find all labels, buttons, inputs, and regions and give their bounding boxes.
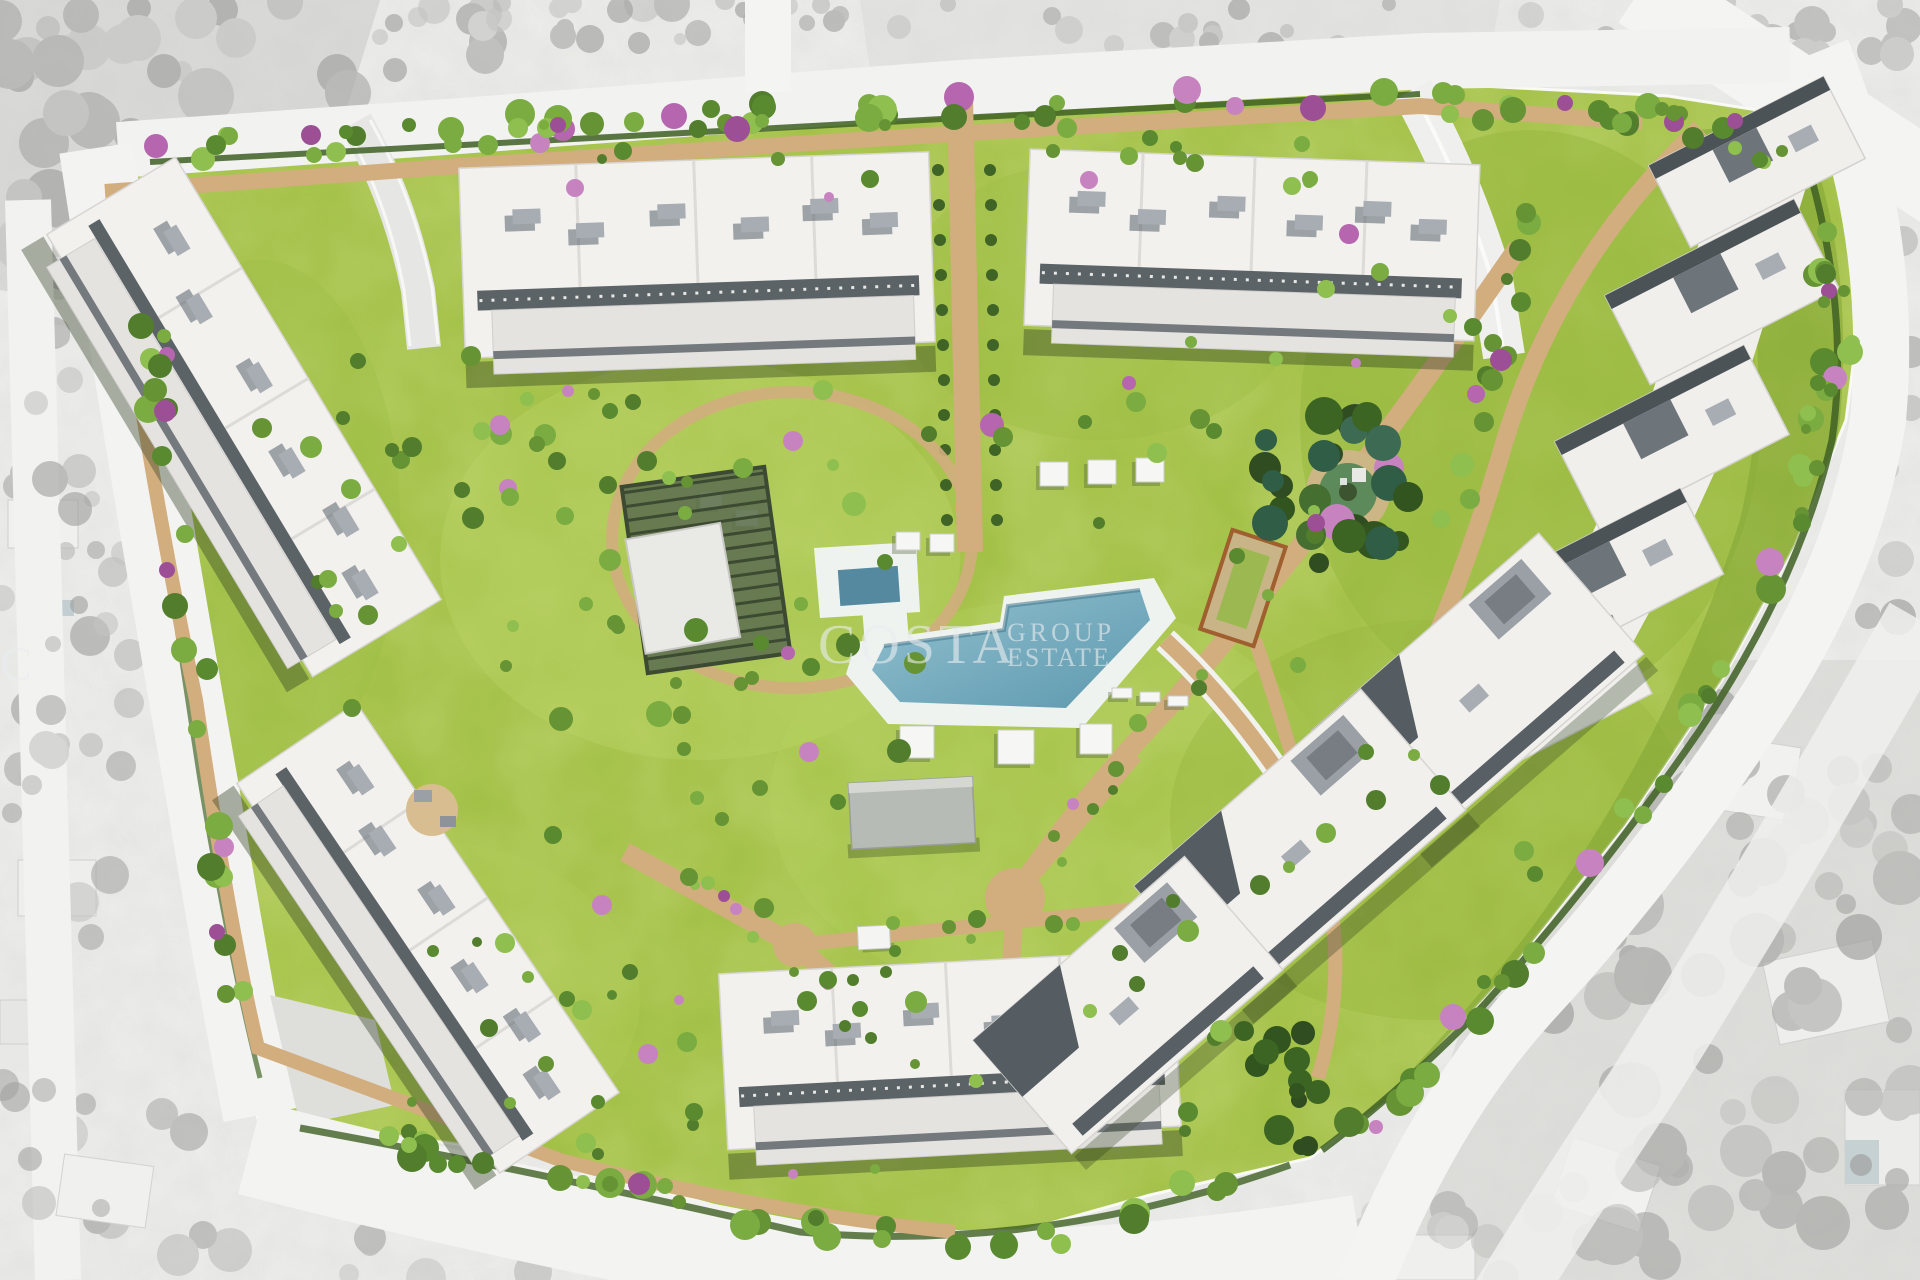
svg-text:COSTA: COSTA [818,614,1017,676]
svg-text:C: C [0,638,32,691]
svg-text:ESTATE: ESTATE [1007,643,1111,672]
